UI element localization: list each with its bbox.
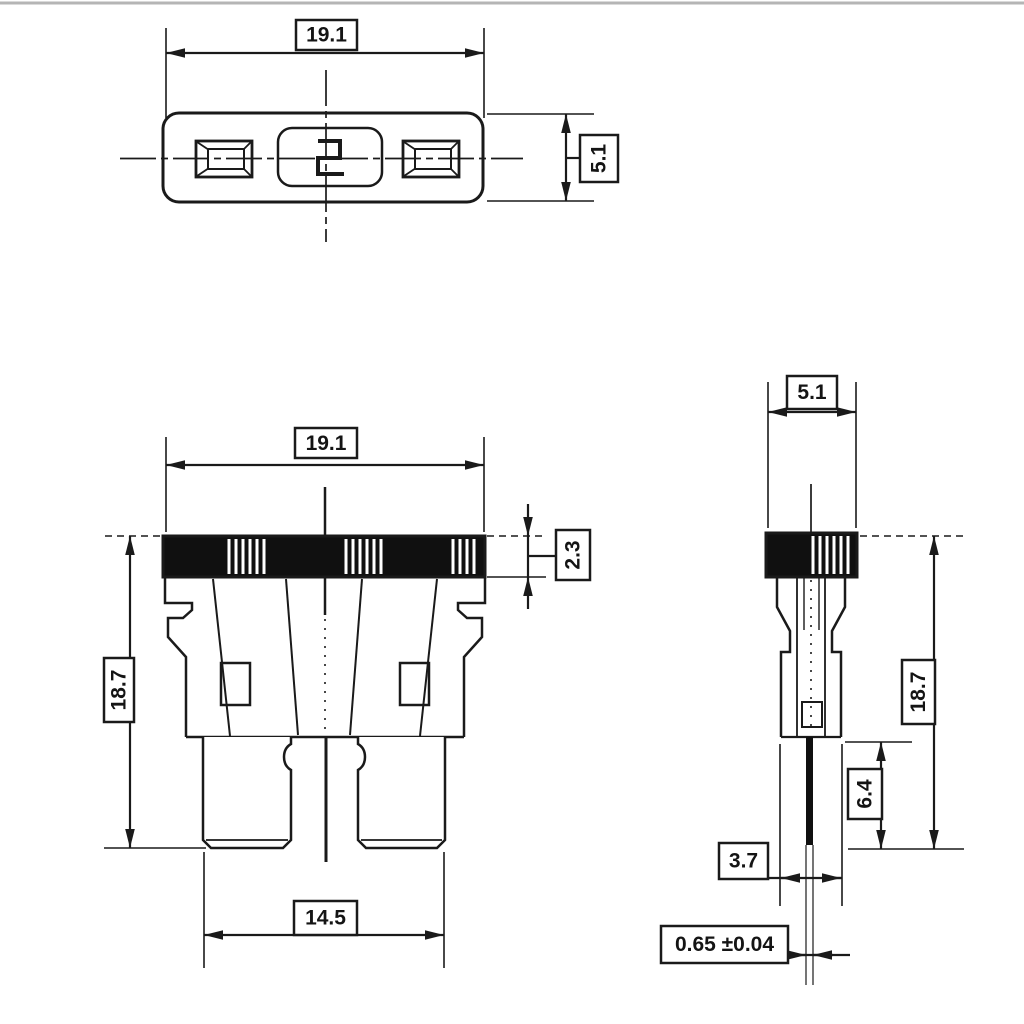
dim-blade-thickness: 0.65 ±0.04 xyxy=(661,926,850,963)
dim-label-blade-length: 6.4 xyxy=(854,779,877,809)
dim-label-top-height: 5.1 xyxy=(588,144,611,174)
dim-label-side-height: 18.7 xyxy=(907,672,930,713)
dim-front-cap-height: 2.3 xyxy=(487,504,590,609)
dim-front-height: 18.7 xyxy=(104,536,206,848)
dim-label-side-width: 5.1 xyxy=(797,381,827,404)
dim-label-blade-thickness: 0.65 ±0.04 xyxy=(675,933,774,956)
fuse-cap-side xyxy=(766,533,857,577)
left-blade xyxy=(203,737,291,848)
fuse-dimensional-drawing-canvas: 19.1 5.1 xyxy=(0,0,1024,1024)
dim-label-front-width: 19.1 xyxy=(306,432,347,455)
dim-blade-length: 6.4 xyxy=(845,742,912,849)
fuse-cap-front xyxy=(163,536,485,577)
side-view: 5.1 18.7 6.4 3.7 xyxy=(661,376,966,985)
dim-side-width: 5.1 xyxy=(768,376,856,528)
center-element-window xyxy=(278,128,382,186)
dim-label-top-width: 19.1 xyxy=(306,24,347,47)
blade-fuse-technical-drawing: 19.1 5.1 xyxy=(0,0,1024,1024)
front-view: 19.1 2.3 18.7 14.5 xyxy=(104,428,590,968)
fuse-body-side xyxy=(777,577,845,737)
dim-lower-body-width: 3.7 xyxy=(719,744,842,906)
dim-top-view-height: 5.1 xyxy=(487,114,618,201)
side-window xyxy=(802,702,822,727)
top-view: 19.1 5.1 xyxy=(120,20,618,242)
dim-label-cap-height: 2.3 xyxy=(562,540,585,569)
fuse-blade-side xyxy=(806,737,813,985)
dim-blade-span: 14.5 xyxy=(204,852,444,968)
fuse-blades-front xyxy=(203,737,445,848)
right-blade xyxy=(358,737,445,848)
fuse-element-glyph xyxy=(318,141,344,174)
dim-label-blade-span: 14.5 xyxy=(305,907,346,930)
dim-label-lower-body-width: 3.7 xyxy=(729,850,758,873)
dim-top-view-width: 19.1 xyxy=(166,20,484,118)
dim-label-front-height: 18.7 xyxy=(108,670,131,711)
